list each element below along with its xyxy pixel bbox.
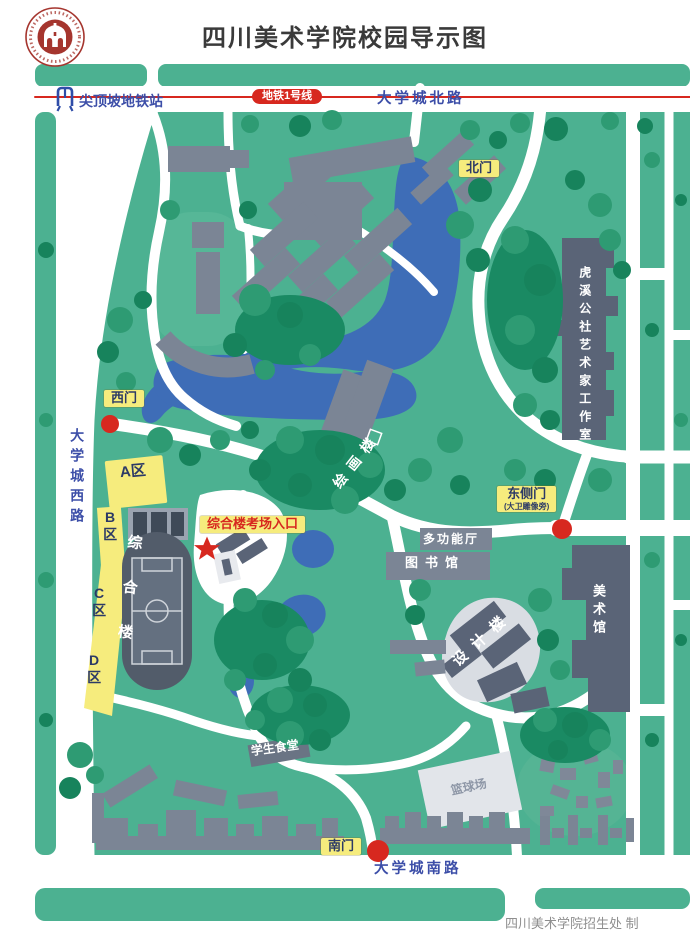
metro-line-badge: 地铁1号线 — [252, 89, 322, 104]
campus-map-page: 四川美术学院校园导示图 尖顶坡地铁站 地铁1号线 大学城北路 北门 西门 南门 … — [0, 0, 690, 943]
huxi-studio-label: 虎溪公社艺术家工作室 — [577, 266, 591, 446]
west-road-label: 大学城西路 — [69, 428, 85, 528]
metro-station-icon — [53, 84, 77, 114]
east-gate-label: 东侧门 (大卫雕像旁) — [497, 486, 556, 512]
library-label: 图书馆 — [405, 556, 465, 571]
north-gate-label: 北门 — [459, 160, 499, 177]
west-gate-label: 西门 — [104, 390, 144, 407]
east-gate-note: (大卫雕像旁) — [504, 502, 549, 511]
east-gate-title: 东侧门 — [504, 487, 549, 502]
zone-c-label: C区 — [91, 585, 107, 619]
east-gate-marker — [552, 519, 572, 539]
zone-a-label: A区 — [119, 462, 146, 481]
north-road-label: 大学城北路 — [377, 91, 465, 108]
west-gate-marker — [101, 415, 119, 433]
south-gate-label: 南门 — [321, 838, 361, 855]
metro-station-label: 尖顶坡地铁站 — [79, 93, 163, 109]
zone-b-label: B区 — [102, 509, 118, 543]
art-museum-label: 美术馆 — [590, 584, 605, 638]
south-road-label: 大学城南路 — [374, 861, 462, 878]
page-title: 四川美术学院校园导示图 — [0, 18, 690, 53]
exam-entrance-label: 综合楼考场入口 — [200, 516, 305, 533]
zone-d-label: D区 — [86, 652, 102, 686]
south-gate-marker — [367, 840, 389, 862]
multifunction-hall-label: 多功能厅 — [423, 533, 479, 547]
credit-line: 四川美术学院招生处 制 — [505, 913, 639, 932]
